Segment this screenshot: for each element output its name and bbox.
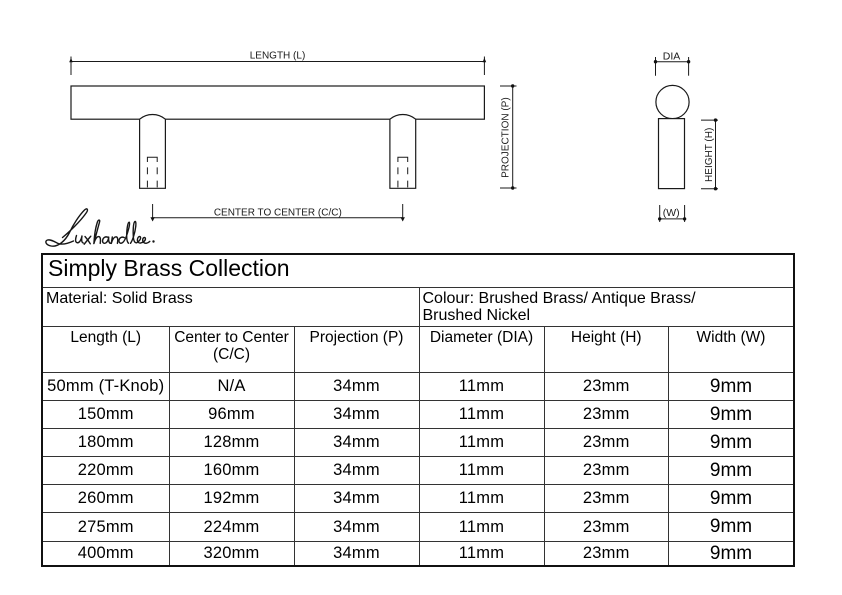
svg-text:CENTER TO CENTER (C/C): CENTER TO CENTER (C/C): [214, 207, 342, 218]
svg-text:HEIGHT (H): HEIGHT (H): [704, 128, 715, 182]
svg-text:PROJECTION (P): PROJECTION (P): [501, 97, 512, 178]
svg-text:(W): (W): [663, 207, 680, 219]
svg-text:LENGTH (L): LENGTH (L): [250, 50, 306, 61]
svg-text:DIA: DIA: [663, 51, 681, 63]
